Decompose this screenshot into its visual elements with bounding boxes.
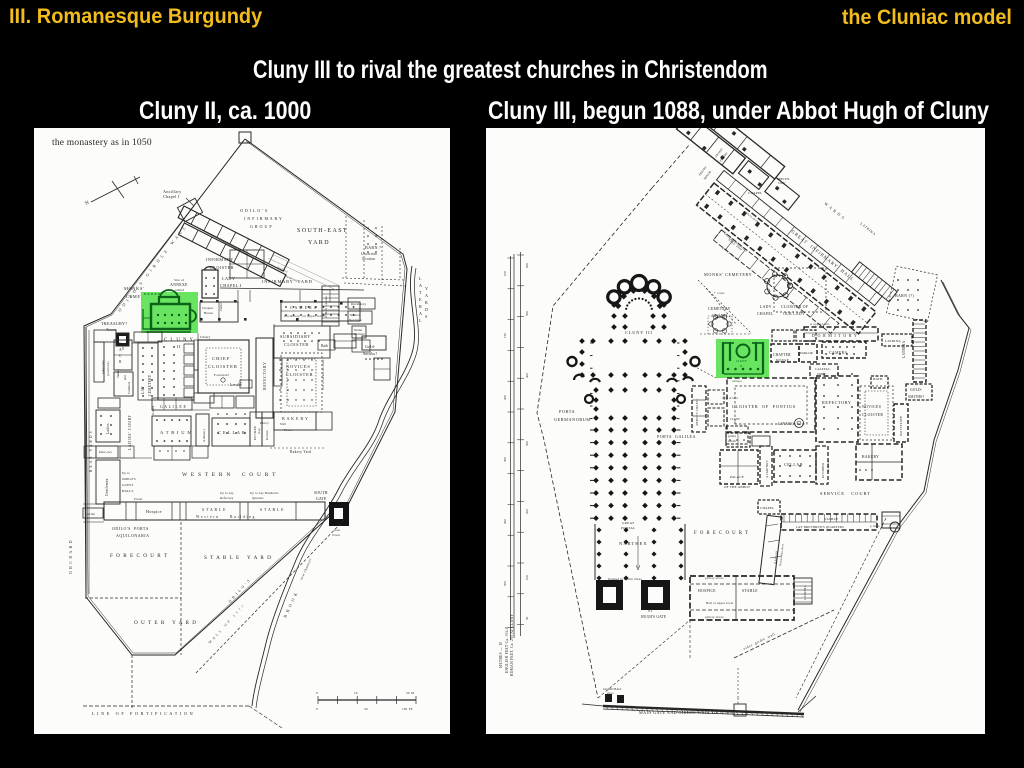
svg-text:200: 200 bbox=[525, 509, 529, 514]
svg-text:200: 200 bbox=[503, 395, 507, 400]
svg-text:100: 100 bbox=[503, 271, 507, 276]
svg-text:Galilee: Galilee bbox=[151, 405, 155, 415]
svg-text:LADIES' COURT: LADIES' COURT bbox=[128, 414, 132, 450]
svg-text:GUARD HALL: GUARD HALL bbox=[603, 688, 622, 691]
svg-text:CELLAR: CELLAR bbox=[784, 462, 803, 467]
svg-text:gallery above: gallery above bbox=[705, 615, 724, 619]
svg-text:CLUNY: CLUNY bbox=[730, 418, 740, 421]
svg-text:ENGLISH FEET Ca. 304.8: ENGLISH FEET Ca. 304.8 bbox=[505, 627, 509, 673]
svg-text:I N F I R M A R Y: I N F I R M A R Y bbox=[244, 216, 282, 221]
svg-text:CHAPTER: CHAPTER bbox=[773, 353, 791, 357]
svg-text:Chapter: Chapter bbox=[202, 306, 214, 310]
svg-text:CEMETERY: CEMETERY bbox=[708, 307, 731, 311]
svg-text:LAVABO: LAVABO bbox=[778, 422, 794, 426]
svg-text:400: 400 bbox=[525, 373, 529, 378]
svg-text:BARN ?: BARN ? bbox=[365, 245, 381, 250]
svg-text:CLOISTER: CLOISTER bbox=[208, 364, 238, 369]
svg-text:Latrina: Latrina bbox=[85, 512, 95, 516]
svg-text:CLOISTER OF: CLOISTER OF bbox=[781, 305, 808, 309]
svg-text:II: II bbox=[177, 344, 181, 349]
svg-text:300: 300 bbox=[525, 441, 529, 446]
svg-text:LADY: LADY bbox=[222, 276, 235, 281]
svg-text:Cobblers: Cobblers bbox=[127, 381, 131, 394]
svg-text:C L U N Y: C L U N Y bbox=[164, 338, 194, 343]
svg-text:ABBOT'S CHAPEL: ABBOT'S CHAPEL bbox=[695, 398, 699, 426]
svg-text:O U T E R Y A R D: O U T E R Y A R D bbox=[134, 620, 197, 626]
svg-text:D O R M I T O R Y: D O R M I T O R Y bbox=[812, 333, 858, 338]
svg-text:NOVICES: NOVICES bbox=[286, 364, 311, 369]
svg-text:R: R bbox=[419, 304, 422, 309]
svg-text:T: T bbox=[419, 290, 422, 295]
svg-text:+ cross: + cross bbox=[714, 291, 725, 295]
svg-text:gallery above: gallery above bbox=[705, 576, 724, 580]
svg-text:SOUTH-EAST: SOUTH-EAST bbox=[297, 228, 348, 234]
svg-text:Dormitory on upper level: Dormitory on upper level bbox=[284, 314, 325, 318]
svg-text:LAY BRETHREN'S QUARTERS: LAY BRETHREN'S QUARTERS bbox=[796, 525, 844, 529]
svg-text:Fountain?: Fountain? bbox=[214, 373, 230, 377]
svg-text:Gate: Gate bbox=[334, 528, 341, 532]
svg-text:Hall at upper level: Hall at upper level bbox=[706, 601, 733, 605]
svg-text:HOSPICE: HOSPICE bbox=[698, 589, 716, 593]
svg-text:G A L I L E E: G A L I L E E bbox=[160, 405, 187, 409]
svg-text:BATH: BATH bbox=[873, 377, 883, 381]
svg-text:CHAPEL: CHAPEL bbox=[760, 506, 774, 510]
svg-text:ODILO'S PORTA: ODILO'S PORTA bbox=[112, 526, 149, 531]
svg-text:NARTHEX: NARTHEX bbox=[619, 541, 648, 546]
svg-text:Refec-tory: Refec-tory bbox=[99, 451, 112, 454]
svg-text:BARN (?): BARN (?) bbox=[895, 293, 914, 298]
svg-text:Novitiate: Novitiate bbox=[349, 318, 362, 322]
svg-text:LATRINA: LATRINA bbox=[803, 584, 807, 600]
svg-text:LAY: LAY bbox=[141, 386, 145, 394]
svg-text:KITCHENS: KITCHENS bbox=[822, 462, 825, 478]
svg-text:II: II bbox=[740, 364, 742, 368]
svg-text:CEMETERY: CEMETERY bbox=[148, 374, 152, 396]
svg-text:W E S T E R N C O U R T: W E S T E R N C O U R T bbox=[182, 472, 277, 478]
svg-text:CLUNY: CLUNY bbox=[736, 359, 748, 363]
svg-text:Parlor: Parlor bbox=[219, 302, 223, 311]
svg-text:CHAPEL: CHAPEL bbox=[748, 191, 762, 195]
svg-text:A T R I U M: A T R I U M bbox=[160, 430, 192, 435]
svg-text:Almonry: Almonry bbox=[202, 428, 206, 442]
svg-text:50: 50 bbox=[364, 707, 368, 711]
svg-text:GUEST: GUEST bbox=[122, 483, 134, 487]
svg-text:LADY: LADY bbox=[760, 305, 772, 309]
svg-text:g. above: g. above bbox=[870, 525, 880, 528]
svg-text:C E L L A R: C E L L A R bbox=[218, 430, 245, 435]
svg-text:Odilo's: Odilo's bbox=[350, 313, 360, 317]
svg-text:NOVITIATE: NOVITIATE bbox=[899, 415, 903, 436]
svg-text:Kitchen: Kitchen bbox=[266, 430, 269, 440]
svg-text:STABLE: STABLE bbox=[824, 517, 838, 521]
svg-text:LATRINA: LATRINA bbox=[902, 340, 906, 358]
svg-text:600: 600 bbox=[525, 263, 529, 268]
svg-text:finished in Gothic times: finished in Gothic times bbox=[608, 577, 642, 581]
svg-text:Gold-: Gold- bbox=[365, 344, 376, 349]
svg-text:PALACE: PALACE bbox=[730, 475, 744, 479]
svg-text:Site of earlier novitiate: Site of earlier novitiate bbox=[322, 359, 325, 390]
svg-text:LATRINA: LATRINA bbox=[885, 339, 901, 343]
svg-text:CALEFAC-: CALEFAC- bbox=[815, 367, 831, 371]
svg-text:A: A bbox=[425, 293, 428, 298]
svg-text:STABLE: STABLE bbox=[742, 589, 758, 593]
svg-text:CLOISTER OF PONTIUS: CLOISTER OF PONTIUS bbox=[732, 404, 796, 409]
svg-text:SUBSIDIARY: SUBSIDIARY bbox=[280, 334, 311, 339]
svg-text:Gentlemen: Gentlemen bbox=[105, 478, 109, 496]
svg-text:PORTA GALILEA: PORTA GALILEA bbox=[657, 434, 696, 439]
svg-text:CLOISTER: CLOISTER bbox=[284, 342, 309, 347]
svg-text:L: L bbox=[419, 276, 422, 281]
svg-text:Hospice: Hospice bbox=[146, 509, 162, 514]
svg-text:100: 100 bbox=[525, 575, 529, 580]
svg-text:Y: Y bbox=[425, 286, 428, 291]
svg-text:ANNEXE: ANNEXE bbox=[170, 282, 188, 287]
svg-text:SOUTH: SOUTH bbox=[314, 491, 328, 495]
svg-text:Well: Well bbox=[280, 422, 286, 426]
svg-text:CAMERA: CAMERA bbox=[829, 351, 848, 355]
svg-text:YARD: YARD bbox=[308, 240, 330, 246]
svg-text:F O R E C O U R T: F O R E C O U R T bbox=[110, 553, 168, 559]
svg-text:Quarters: Quarters bbox=[252, 496, 264, 500]
svg-text:the monastery as in 1050: the monastery as in 1050 bbox=[52, 138, 152, 148]
svg-text:positions): positions) bbox=[106, 361, 110, 376]
svg-text:150 FT.: 150 FT. bbox=[402, 707, 414, 711]
svg-text:Up to Lay: Up to Lay bbox=[220, 491, 234, 495]
svg-text:500: 500 bbox=[525, 311, 529, 316]
svg-text:ISTY: ISTY bbox=[121, 342, 125, 350]
svg-text:Bakery Yard: Bakery Yard bbox=[290, 450, 311, 454]
svg-text:added: added bbox=[175, 288, 184, 292]
svg-text:PORTA: PORTA bbox=[559, 409, 575, 414]
svg-text:L I N E O F F O R T I F I: L I N E O F F O R T I F I C A T I O N bbox=[92, 711, 193, 716]
svg-text:Library: Library bbox=[200, 335, 211, 339]
svg-text:MAIN GATE AND GIRDLE WALL OF 1: MAIN GATE AND GIRDLE WALL OF 1179? bbox=[639, 710, 732, 715]
svg-text:GATE: GATE bbox=[316, 497, 327, 501]
svg-text:CLOISTER: CLOISTER bbox=[286, 372, 313, 377]
svg-text:R: R bbox=[425, 300, 428, 305]
svg-text:CHIEF: CHIEF bbox=[212, 356, 230, 361]
svg-text:OUR LADY: OUR LADY bbox=[783, 312, 805, 316]
svg-text:A: A bbox=[419, 283, 422, 288]
svg-text:R E A R Y A R D S: R E A R Y A R D S bbox=[89, 431, 93, 472]
svg-text:House: House bbox=[204, 311, 214, 315]
svg-text:CLOISTER: CLOISTER bbox=[862, 413, 883, 417]
svg-text:0: 0 bbox=[316, 691, 318, 695]
svg-text:10: 10 bbox=[354, 691, 358, 695]
svg-text:NOVICES: NOVICES bbox=[862, 405, 881, 409]
svg-text:500: 500 bbox=[503, 581, 507, 586]
svg-text:REFECTORY: REFECTORY bbox=[262, 362, 267, 390]
svg-text:AQUILONARIA: AQUILONARIA bbox=[116, 533, 150, 538]
svg-text:S T A B L E: S T A B L E bbox=[260, 508, 284, 512]
svg-text:B A K E R Y: B A K E R Y bbox=[282, 416, 308, 421]
svg-text:Ladies: Ladies bbox=[106, 423, 110, 434]
svg-text:MONKS' CEMETERY: MONKS' CEMETERY bbox=[704, 272, 752, 277]
svg-text:E: E bbox=[419, 297, 422, 302]
svg-text:400: 400 bbox=[503, 519, 507, 524]
svg-text:CHAPEL I: CHAPEL I bbox=[220, 283, 242, 288]
svg-text:B u i l d i n g: B u i l d i n g bbox=[230, 515, 255, 519]
svg-text:II: II bbox=[734, 422, 736, 425]
svg-text:G R O U P: G R O U P bbox=[250, 224, 272, 229]
svg-text:INFIRMARY: INFIRMARY bbox=[206, 257, 234, 262]
svg-text:Pancry: Pancry bbox=[260, 421, 269, 425]
svg-text:HOUSE: HOUSE bbox=[776, 359, 790, 363]
svg-text:lay monks: lay monks bbox=[827, 460, 830, 472]
svg-text:ODILO'S: ODILO'S bbox=[122, 477, 136, 481]
svg-text:and: and bbox=[123, 375, 127, 380]
svg-text:Odilo's Latrine: Odilo's Latrine bbox=[324, 296, 328, 318]
svg-text:HALLS: HALLS bbox=[122, 489, 133, 493]
svg-text:Tower: Tower bbox=[332, 533, 340, 537]
svg-text:Up to Lay Brethren's: Up to Lay Brethren's bbox=[250, 491, 279, 495]
svg-text:CLUNY III: CLUNY III bbox=[625, 330, 653, 335]
svg-text:W e s t e r n: W e s t e r n bbox=[196, 515, 219, 519]
svg-text:Porter: Porter bbox=[134, 497, 143, 501]
svg-text:atrium: atrium bbox=[728, 440, 737, 443]
svg-text:C A M E R A: C A M E R A bbox=[290, 306, 317, 310]
svg-text:MONKS': MONKS' bbox=[124, 286, 144, 291]
svg-text:D: D bbox=[425, 307, 428, 312]
svg-text:above: above bbox=[607, 692, 614, 695]
svg-text:0: 0 bbox=[316, 707, 318, 711]
svg-text:Up to: Up to bbox=[122, 471, 130, 475]
svg-text:CHAPEL: CHAPEL bbox=[757, 312, 774, 316]
svg-text:50: 50 bbox=[525, 616, 529, 620]
svg-text:S T A B L E Y A R D: S T A B L E Y A R D bbox=[204, 555, 272, 561]
svg-text:GERMANORUM: GERMANORUM bbox=[554, 417, 591, 422]
svg-text:O R C H A R D: O R C H A R D bbox=[69, 540, 73, 574]
svg-text:A: A bbox=[419, 311, 422, 316]
svg-text:galilee: galilee bbox=[728, 435, 737, 438]
svg-text:S T A B L E: S T A B L E bbox=[202, 508, 226, 512]
svg-text:METRES — 10: METRES — 10 bbox=[499, 642, 503, 668]
svg-text:GOLD-: GOLD- bbox=[910, 388, 923, 392]
svg-text:transept: transept bbox=[732, 380, 742, 383]
svg-text:SMITHS?: SMITHS? bbox=[908, 395, 924, 399]
svg-text:Chapel I: Chapel I bbox=[163, 194, 180, 199]
svg-text:location: location bbox=[362, 257, 375, 261]
svg-text:OF THE ABBOT: OF THE ABBOT bbox=[724, 485, 751, 489]
svg-text:150: 150 bbox=[503, 333, 507, 338]
svg-text:PARLOR: PARLOR bbox=[800, 351, 814, 355]
svg-text:HUGH'S GATE: HUGH'S GATE bbox=[641, 615, 667, 619]
svg-text:SERVICE COURT: SERVICE COURT bbox=[820, 491, 871, 496]
svg-text:REFECTORY: REFECTORY bbox=[822, 400, 852, 405]
svg-text:L: L bbox=[419, 318, 422, 323]
svg-text:INFIRMARY YARD: INFIRMARY YARD bbox=[262, 279, 313, 284]
svg-text:KITCH-EN: KITCH-EN bbox=[254, 426, 257, 440]
svg-text:ALMONRY: ALMONRY bbox=[765, 460, 769, 478]
svg-text:PORTAL: PORTAL bbox=[621, 526, 636, 530]
svg-text:Bath: Bath bbox=[321, 344, 328, 348]
svg-text:Uncertain: Uncertain bbox=[361, 252, 377, 256]
svg-text:50 M: 50 M bbox=[406, 691, 414, 695]
svg-text:Tailors: Tailors bbox=[116, 368, 120, 378]
svg-text:TREASURY?: TREASURY? bbox=[101, 321, 127, 326]
svg-text:Dormitory: Dormitory bbox=[351, 302, 366, 306]
svg-text:300: 300 bbox=[503, 457, 507, 462]
svg-text:F O R E C O U R T: F O R E C O U R T bbox=[694, 531, 749, 536]
svg-text:BAKERY: BAKERY bbox=[862, 455, 879, 459]
svg-text:O D I L O ' S: O D I L O ' S bbox=[240, 208, 268, 213]
svg-text:(Lay): (Lay) bbox=[258, 428, 261, 434]
svg-text:TOR?: TOR? bbox=[778, 181, 786, 185]
svg-text:ST: ST bbox=[648, 609, 653, 613]
svg-text:Refectory: Refectory bbox=[220, 496, 234, 500]
svg-text:GREAT: GREAT bbox=[622, 521, 635, 525]
svg-text:(alternate: (alternate bbox=[101, 360, 105, 374]
svg-text:Monks: Monks bbox=[354, 329, 362, 332]
